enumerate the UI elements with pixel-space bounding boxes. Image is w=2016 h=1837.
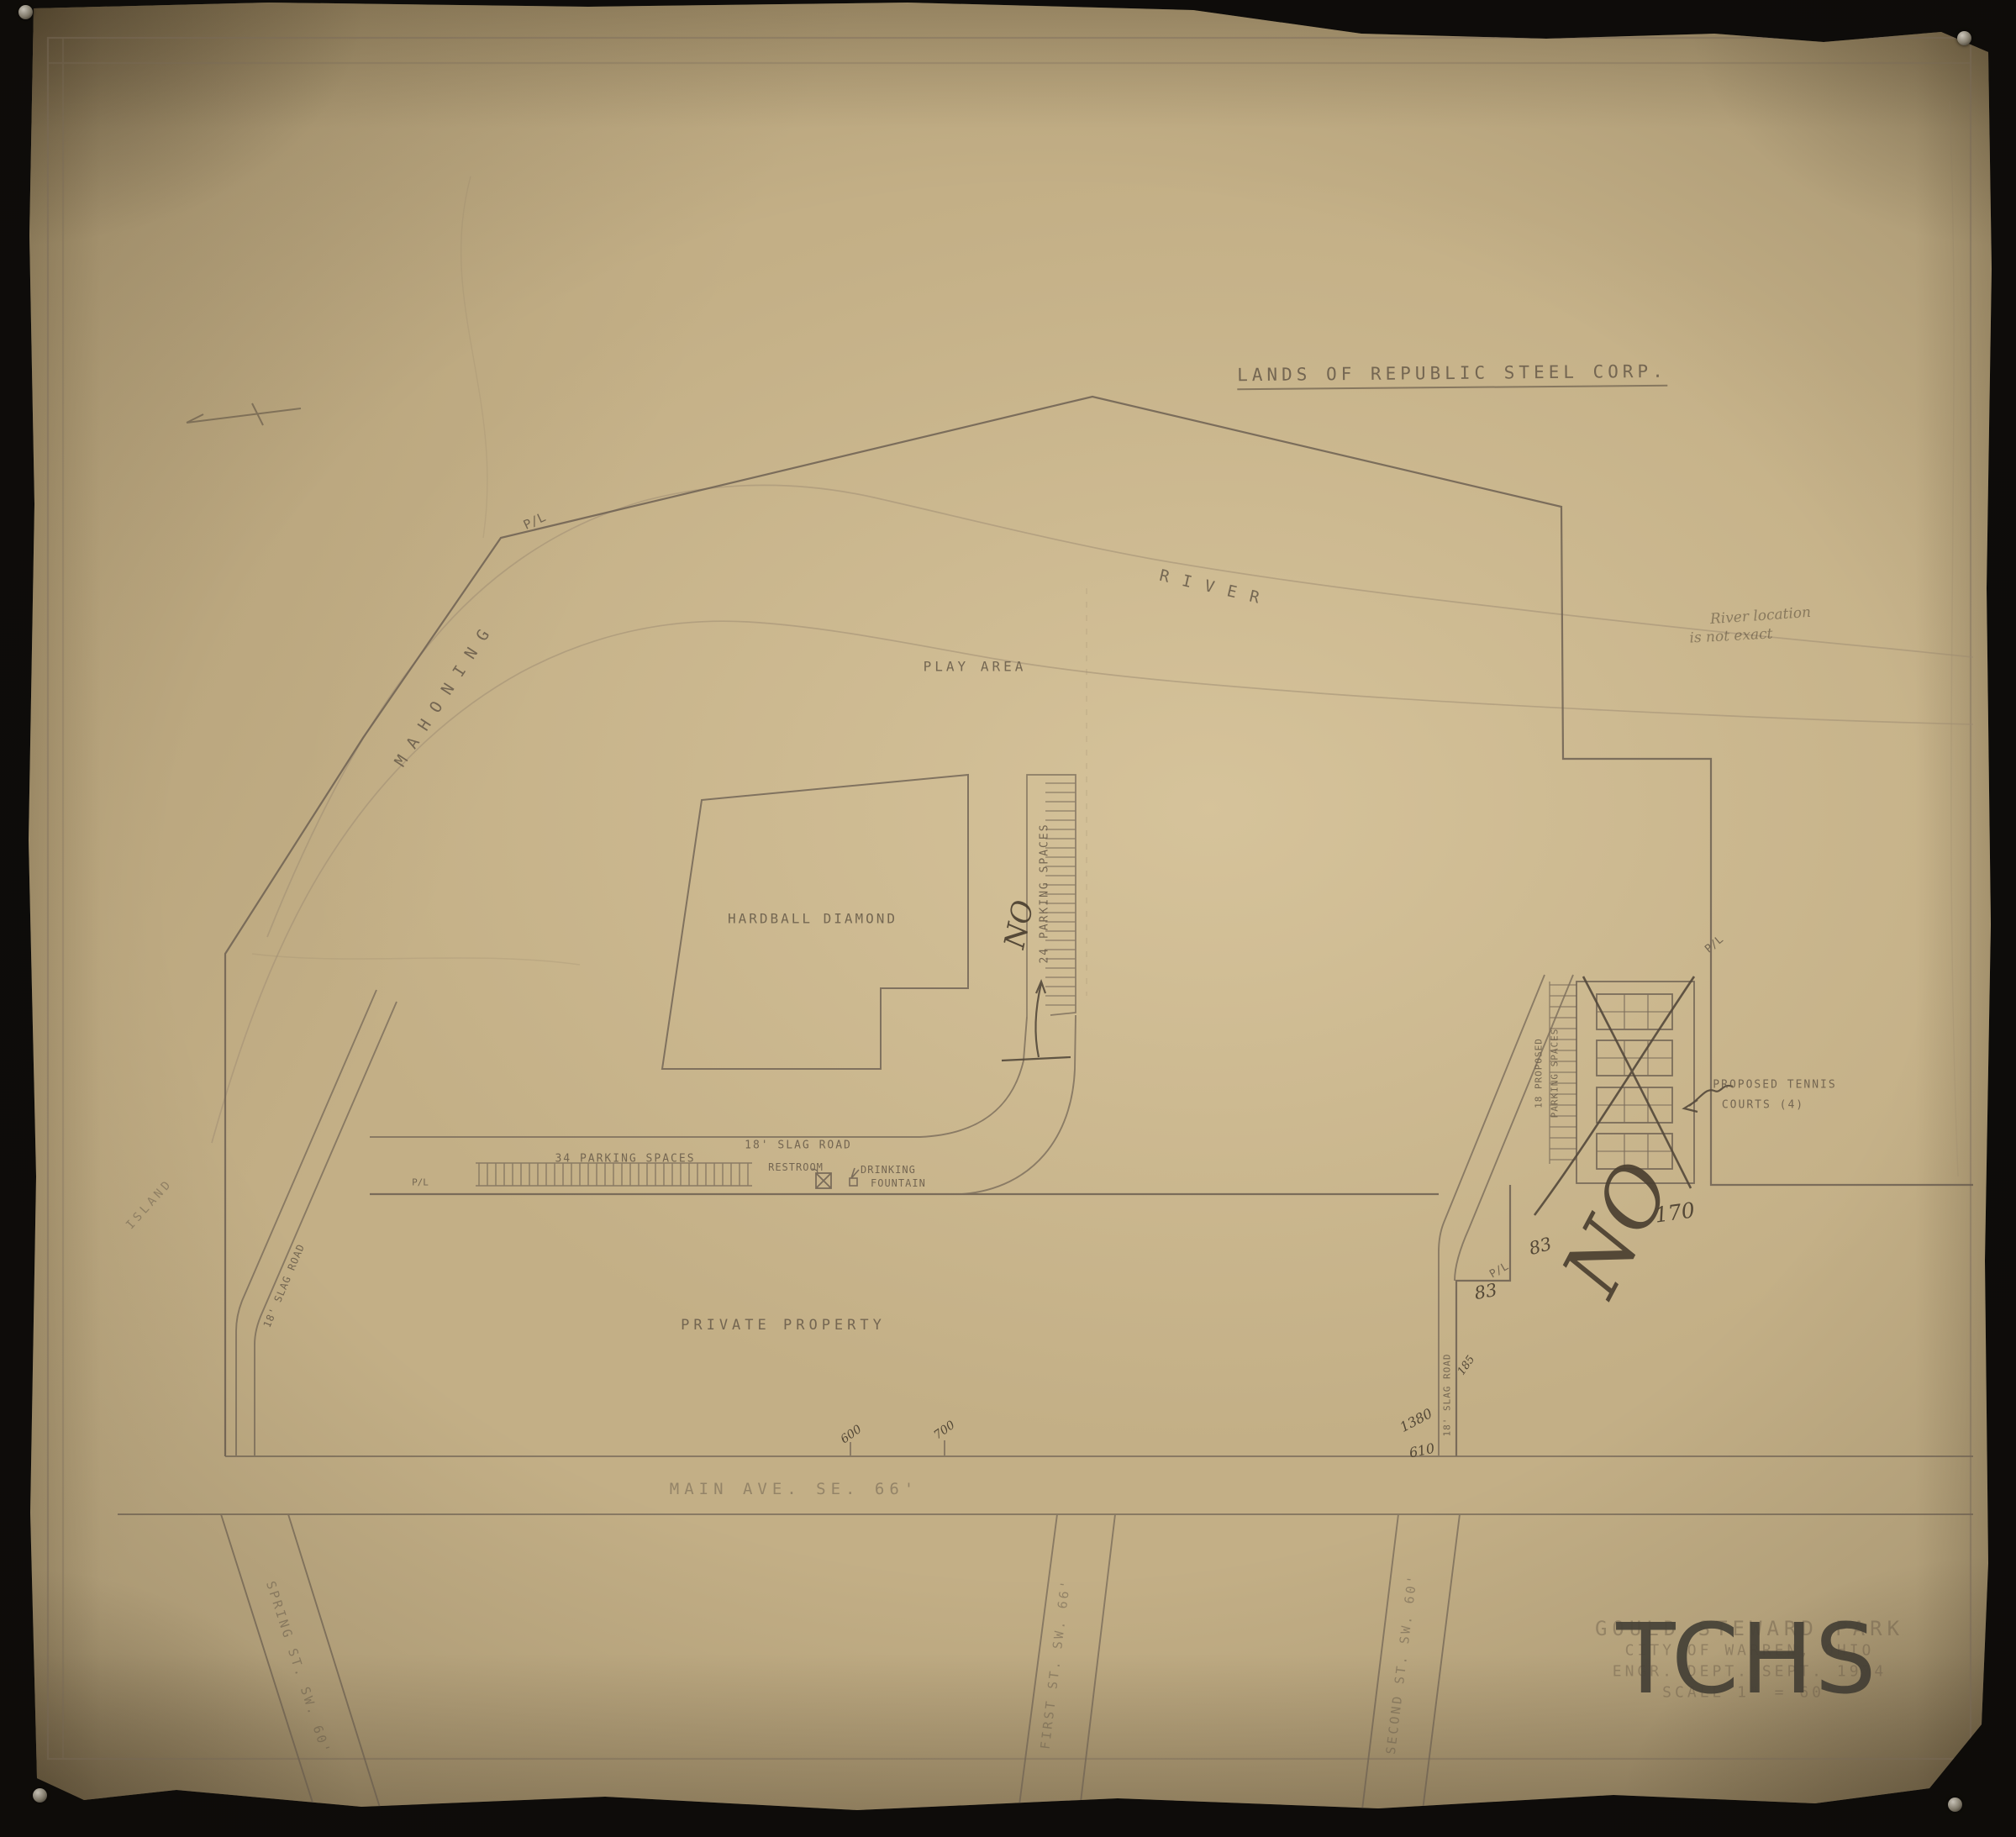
- drinking-fountain-label-line1: DRINKING: [861, 1164, 916, 1176]
- lands-of-republic-steel-label: LANDS OF REPUBLIC STEEL CORP.: [1237, 361, 1667, 390]
- property-boundary-line: [225, 397, 1973, 1456]
- slag-road-right-label: 18' SLAG ROAD: [1442, 1353, 1453, 1436]
- property-line-marker-4: P/L: [412, 1177, 429, 1188]
- handwritten-arrow-parking: [1002, 982, 1071, 1061]
- drinking-fountain-label-line2: FOUNTAIN: [871, 1177, 926, 1189]
- restroom-label: RESTROOM: [768, 1161, 824, 1173]
- hardball-diamond-label: HARDBALL DIAMOND: [728, 911, 897, 927]
- mounting-screw-bottom-right: [1948, 1798, 1962, 1812]
- tennis-courts-label-line1: PROPOSED TENNIS: [1713, 1079, 1836, 1092]
- tennis-courts-label-line2: COURTS (4): [1722, 1099, 1804, 1112]
- tchs-watermark: TCHS: [1616, 1603, 1877, 1716]
- mounting-screw-bottom-left: [33, 1788, 47, 1803]
- survey-mark-sketch: [187, 403, 301, 425]
- handwritten-83-b: 83: [1473, 1280, 1498, 1303]
- play-area-label: PLAY AREA: [924, 659, 1027, 675]
- main-ave-label: MAIN AVE. SE. 66': [670, 1480, 919, 1498]
- blueprint-paper-sheet: LANDS OF REPUBLIC STEEL CORP. MAHONING R…: [0, 0, 2016, 1837]
- tennis-courts: [1576, 982, 1694, 1183]
- parking-row-34: [476, 1163, 752, 1186]
- photograph-of-site-plan: LANDS OF REPUBLIC STEEL CORP. MAHONING R…: [0, 0, 2016, 1837]
- parking-34-label: 34 PARKING SPACES: [555, 1153, 695, 1166]
- parking-strip-24: [1027, 775, 1076, 1017]
- mahoning-river-banks: [212, 485, 1973, 1143]
- private-property-label: PRIVATE PROPERTY: [681, 1317, 886, 1334]
- mounting-screw-top-right: [1957, 31, 1971, 45]
- slag-road-center-label: 18' SLAG ROAD: [745, 1140, 852, 1152]
- mounting-screw-top-left: [18, 5, 33, 19]
- drinking-fountain-symbol: [850, 1168, 859, 1186]
- parking-24-label: 24 PARKING SPACES: [1039, 823, 1051, 963]
- proposed-parking-label-line2: PARKING SPACES: [1550, 1029, 1561, 1119]
- proposed-parking-label-line1: 18 PROPOSED: [1534, 1038, 1545, 1108]
